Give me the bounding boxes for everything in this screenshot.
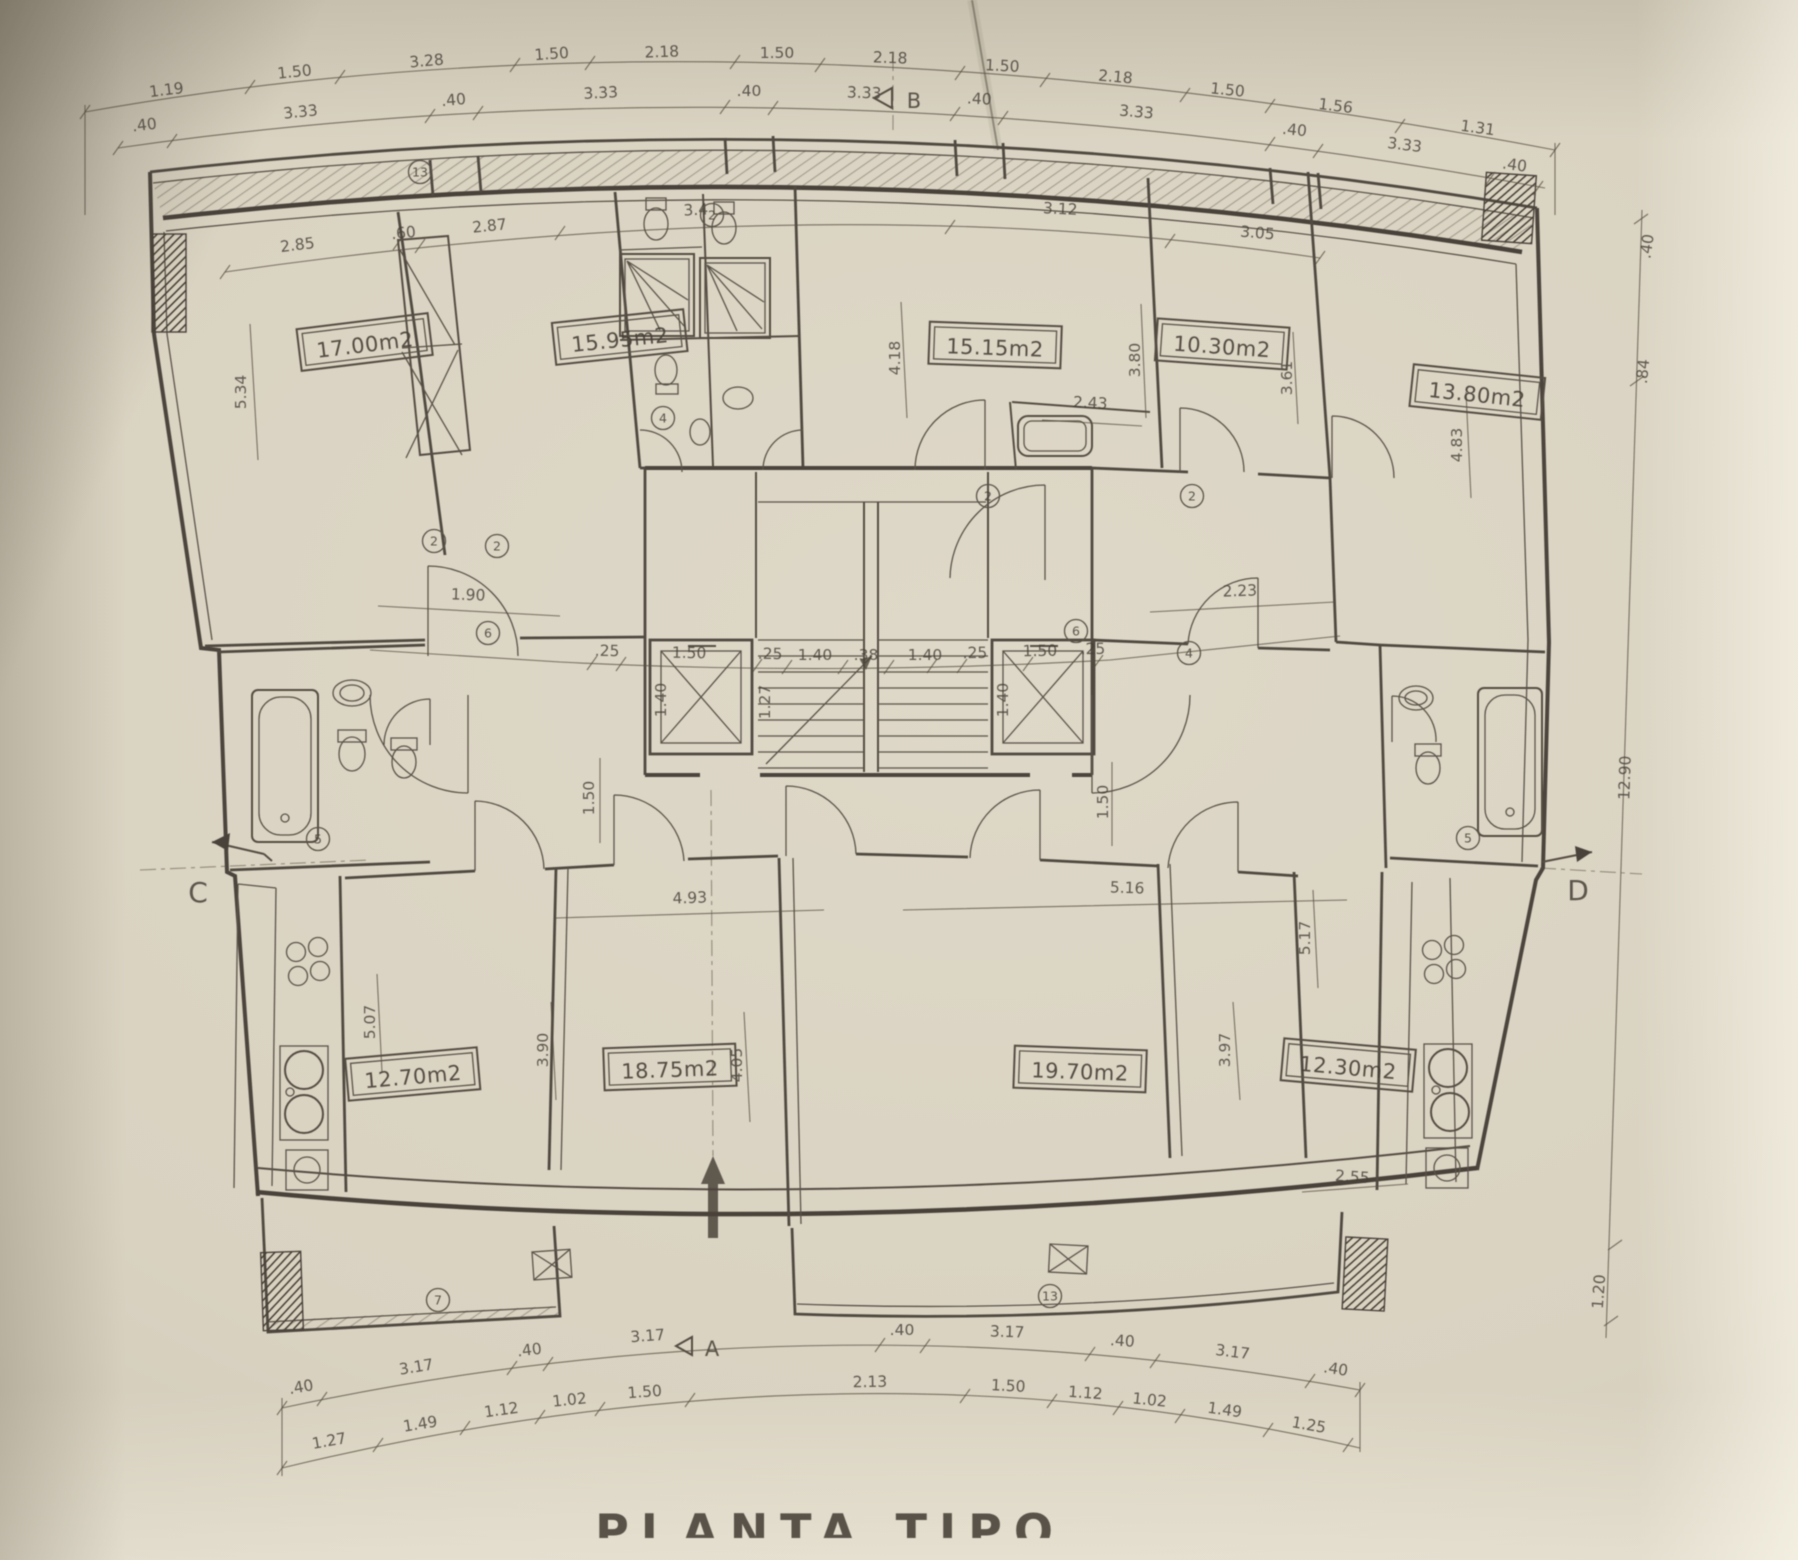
dim-label: .40	[890, 1321, 915, 1339]
bathtub	[252, 690, 318, 842]
stair-spine	[864, 502, 878, 772]
svg-text:13.80m2: 13.80m2	[1427, 378, 1526, 412]
dim-label: 2.55	[1335, 1167, 1371, 1187]
right-edge-dimensions: .40 .84 12.90 1.20	[1589, 210, 1658, 1338]
svg-text:D: D	[1567, 874, 1589, 907]
svg-text:2: 2	[430, 534, 438, 549]
scanned-floorplan-photo: 1.19 1.50 3.28 1.50 2.18 1.50 2.18 1.50 …	[0, 0, 1798, 1560]
window-symbol	[532, 1249, 572, 1280]
right-inner-line	[1516, 264, 1528, 862]
dim-label: 1.90	[451, 585, 486, 604]
bidet	[690, 419, 710, 445]
toilet	[338, 730, 366, 771]
dim-label: 1.50	[991, 1376, 1026, 1396]
stove-burners	[287, 938, 330, 986]
dim-label: 1.50	[672, 644, 707, 663]
stove-burners	[1423, 936, 1466, 984]
sink	[333, 680, 371, 706]
svg-text:13: 13	[1042, 1289, 1058, 1304]
room-label: 12.70m2	[345, 1047, 480, 1100]
dim-label: 1.20	[1589, 1274, 1609, 1310]
svg-text:B: B	[907, 89, 921, 113]
extension-line	[282, 1382, 1360, 1476]
circled-tag: 4	[652, 407, 675, 430]
dim-label: 3.17	[990, 1322, 1025, 1341]
dim-label: 5.34	[232, 375, 250, 410]
left-bathroom	[252, 680, 417, 842]
dim-label: 3.33	[282, 101, 318, 123]
dim-label: 1.50	[580, 781, 598, 816]
left-balcony-planter	[261, 1251, 304, 1330]
circled-tag: 5	[1457, 827, 1480, 850]
svg-text:19.70m2: 19.70m2	[1031, 1058, 1129, 1085]
dimension-line	[282, 1345, 1360, 1408]
bottom-main-wall	[256, 1168, 1477, 1214]
dim-label: 3.4	[683, 200, 709, 219]
bottom-inner-line	[258, 1146, 1470, 1189]
dim-label: .25	[595, 642, 620, 660]
svg-text:2: 2	[1188, 489, 1196, 504]
dim-label: 3.17	[630, 1326, 666, 1346]
svg-text:18.75m2: 18.75m2	[621, 1056, 719, 1083]
dim-label: .40	[131, 115, 158, 136]
dim-label: .40	[440, 90, 466, 110]
dim-label: 3.90	[534, 1033, 552, 1068]
bathtub	[1478, 688, 1542, 836]
dim-label: 1.40	[994, 683, 1012, 718]
sink	[723, 387, 753, 409]
dim-label: 2.13	[853, 1373, 888, 1392]
dim-label: 3.80	[1126, 343, 1144, 378]
dim-label: 2.43	[1073, 393, 1108, 413]
dim-label: 1.40	[908, 646, 943, 664]
core-dimension-line: .25 1.50 .25 1.40 .38 1.40 .25 1.50 .25	[370, 636, 1340, 674]
room-area-labels: 17.00m2 15.95m2 15.15m2 10.30m2 13.80m2 …	[297, 309, 1546, 1100]
dim-label: 1.56	[1317, 95, 1353, 117]
dim-label: 1.02	[551, 1389, 587, 1411]
svg-text:13: 13	[412, 165, 428, 180]
svg-text:4: 4	[659, 411, 667, 426]
dim-label: 4.93	[672, 888, 707, 907]
dim-label: .84	[1633, 358, 1653, 384]
dim-label: 4.18	[886, 341, 904, 376]
dimension-ticks	[220, 220, 1325, 279]
dim-label: 3.05	[1239, 223, 1275, 244]
dim-label: 1.12	[1068, 1383, 1104, 1403]
dim-label: .40	[1281, 120, 1307, 140]
dim-label: 3.33	[583, 83, 618, 103]
dimension-ticks	[277, 1338, 1365, 1415]
svg-text:6: 6	[1072, 624, 1080, 639]
dimension-line	[378, 420, 1408, 1192]
dim-label: 1.50	[534, 44, 570, 64]
room-label: 18.75m2	[603, 1044, 736, 1091]
stair-core	[645, 468, 1094, 775]
dim-label: 1.50	[627, 1382, 663, 1402]
section-arrow	[701, 1156, 725, 1238]
dim-label: 2.23	[1222, 581, 1257, 600]
svg-text:4: 4	[1185, 646, 1193, 661]
dim-label: 1.40	[798, 646, 833, 664]
svg-text:C: C	[188, 876, 208, 909]
toilet	[1415, 744, 1441, 784]
room-label: 13.80m2	[1409, 364, 1545, 420]
right-balcony	[792, 1212, 1342, 1316]
building-outline	[150, 136, 1549, 1214]
dim-label: .40	[287, 1376, 314, 1398]
dim-label: 3.97	[1216, 1033, 1234, 1068]
paper-crease	[972, 0, 998, 150]
dim-label: 3.33	[1386, 134, 1422, 156]
dim-label: 1.25	[1290, 1413, 1327, 1437]
drawing-title: PLANTA TIPO	[595, 1504, 1065, 1558]
right-bathroom	[1399, 686, 1542, 836]
dim-label: 4.83	[1448, 428, 1466, 463]
circled-tag: 6	[477, 622, 500, 645]
dim-label: .40	[737, 82, 762, 100]
dimension-ticks	[277, 1389, 1353, 1475]
dim-label: .60	[390, 223, 416, 243]
svg-text:12.70m2: 12.70m2	[363, 1061, 462, 1093]
svg-text:7: 7	[434, 1293, 442, 1308]
dim-label: .40	[966, 89, 992, 108]
dim-label: 1.50	[985, 56, 1020, 76]
svg-text:12.30m2: 12.30m2	[1298, 1052, 1397, 1084]
dim-label: 1.49	[402, 1412, 439, 1435]
dim-label: 1.50	[276, 61, 312, 83]
right-balcony-parapet	[797, 1283, 1334, 1306]
dim-label: 2.87	[471, 215, 507, 237]
left-corner-planter	[152, 234, 186, 332]
bottom-balconies	[261, 1198, 1388, 1332]
dim-label: 1.50	[1023, 642, 1058, 661]
dim-label: 12.90	[1615, 755, 1635, 800]
svg-text:A: A	[705, 1337, 720, 1361]
dim-label: 2.18	[1097, 67, 1133, 88]
dim-label: 1.31	[1459, 117, 1496, 140]
dim-label: 1.02	[1131, 1389, 1167, 1411]
dim-label: 2.85	[279, 234, 315, 256]
top-bathrooms	[620, 198, 1150, 470]
dim-label: 1.40	[652, 683, 670, 718]
shower-stall	[700, 258, 770, 338]
circled-tag: 7	[427, 1289, 450, 1312]
room-label: 15.15m2	[928, 322, 1061, 369]
dim-label: 1.50	[1209, 79, 1245, 101]
dim-label: .40	[1322, 1358, 1349, 1380]
room-label: 17.00m2	[297, 313, 433, 371]
dim-label: 5.17	[1296, 921, 1314, 956]
circled-tag: 2	[486, 535, 509, 558]
dim-label: 3.12	[1043, 199, 1078, 219]
svg-text:15.95m2: 15.95m2	[570, 323, 669, 357]
double-sink	[280, 1046, 328, 1140]
dim-label: 3.33	[1118, 102, 1154, 123]
svg-text:6: 6	[484, 626, 492, 641]
double-sink	[1424, 1044, 1472, 1138]
dim-label: 3.28	[409, 51, 445, 72]
dim-label: .25	[962, 644, 987, 662]
dim-label: .40	[516, 1340, 543, 1361]
window-symbol	[1049, 1244, 1088, 1274]
dim-label: .25	[1080, 640, 1105, 658]
dimension-line	[250, 302, 1471, 1122]
dim-label: .40	[1636, 233, 1657, 260]
dimension-line	[225, 225, 1320, 272]
dim-label: 1.49	[1206, 1399, 1243, 1422]
section-markers: B A C D	[140, 55, 1642, 1361]
dim-label: .40	[1501, 154, 1528, 175]
room-label: 10.30m2	[1155, 318, 1290, 369]
section-marker-d: D	[1540, 846, 1642, 907]
door-swings	[370, 400, 1436, 872]
dim-label: 1.19	[148, 79, 184, 101]
dim-label: 1.27	[756, 685, 774, 720]
dim-label: .38	[854, 646, 879, 664]
svg-text:2: 2	[708, 208, 716, 223]
toilet	[644, 198, 668, 240]
svg-text:2: 2	[984, 489, 992, 504]
dim-label: 5.07	[361, 1005, 379, 1040]
dim-label: .40	[1109, 1331, 1135, 1351]
toilet	[655, 355, 678, 394]
circled-tag: 5	[307, 828, 330, 851]
section-marker-c: C	[140, 833, 370, 909]
dim-label: 3.17	[1214, 1341, 1250, 1363]
svg-text:5: 5	[1464, 831, 1472, 846]
circled-tag: 2	[1181, 485, 1204, 508]
dim-label: 2.18	[644, 42, 679, 61]
dim-label: .25	[758, 645, 783, 663]
right-balcony-planter	[1342, 1237, 1388, 1311]
room-label: 19.70m2	[1013, 1046, 1146, 1093]
right-corner-planter	[1482, 172, 1537, 243]
bidet	[391, 738, 417, 778]
svg-text:5: 5	[314, 832, 322, 847]
dim-label: 1.27	[311, 1429, 348, 1453]
dim-label: 2.18	[873, 48, 908, 67]
svg-text:15.15m2: 15.15m2	[946, 334, 1044, 361]
svg-text:2: 2	[493, 539, 501, 554]
right-kitchen	[1406, 878, 1472, 1188]
dim-label: 3.17	[398, 1355, 435, 1378]
dim-label: 1.50	[1094, 785, 1112, 820]
dim-label: 5.16	[1110, 878, 1145, 897]
floorplan-drawing: 1.19 1.50 3.28 1.50 2.18 1.50 2.18 1.50 …	[0, 0, 1798, 1560]
dim-label: 1.12	[483, 1399, 520, 1422]
dim-label: 1.50	[760, 44, 795, 62]
dimension-line	[282, 1394, 1360, 1468]
bottom-dimension-lines: .40 3.17 .40 3.17 .40 3.17 .40 3.17 .40 …	[277, 1321, 1365, 1476]
